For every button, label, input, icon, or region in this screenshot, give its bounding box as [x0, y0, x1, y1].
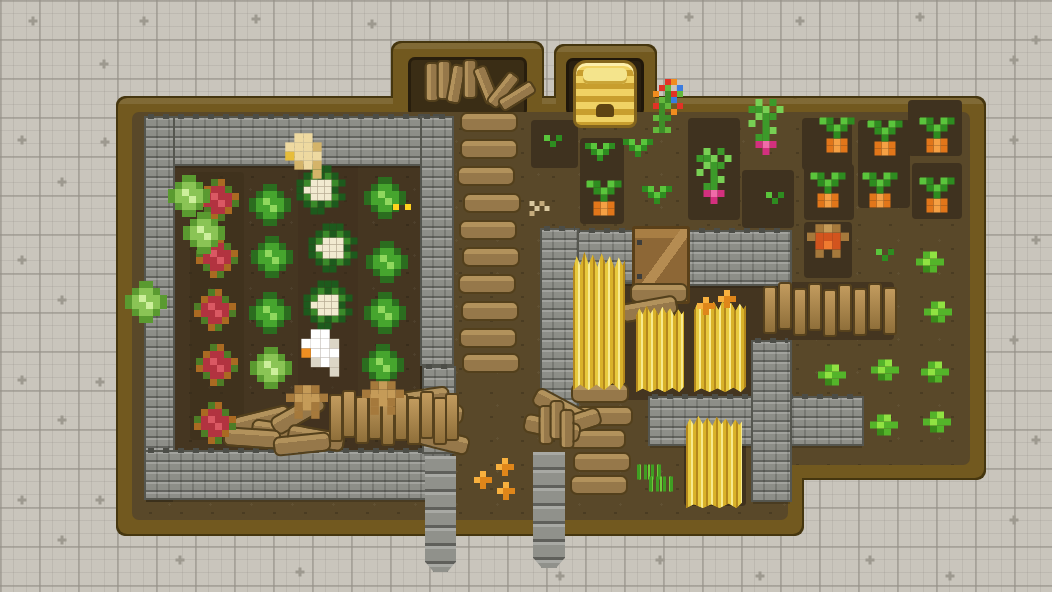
tan-goose[interactable]: [285, 133, 331, 179]
carrot[interactable]: [587, 181, 622, 216]
dwarf[interactable]: [286, 385, 328, 419]
dwarf[interactable]: [362, 381, 404, 415]
sprout[interactable]: [876, 249, 894, 261]
bush[interactable]: [921, 362, 949, 383]
light-cabbage[interactable]: [125, 281, 167, 323]
green-cabbage[interactable]: [366, 241, 408, 283]
red-cabbage[interactable]: [194, 402, 236, 444]
seedling[interactable]: [585, 143, 615, 161]
bush[interactable]: [871, 360, 899, 381]
carrot[interactable]: [920, 178, 955, 213]
carrot[interactable]: [863, 173, 898, 208]
seedling[interactable]: [623, 139, 653, 157]
green-cabbage[interactable]: [249, 292, 291, 334]
bush[interactable]: [916, 252, 944, 273]
sparkle: [393, 204, 417, 216]
green-cabbage[interactable]: [362, 344, 404, 386]
flower-bush[interactable]: [647, 79, 689, 133]
carrot[interactable]: [868, 121, 903, 156]
bush[interactable]: [818, 365, 846, 386]
light-cabbage[interactable]: [168, 175, 210, 217]
chick[interactable]: [474, 471, 492, 489]
seeds: [530, 201, 555, 221]
light-cabbage[interactable]: [183, 212, 225, 254]
chick[interactable]: [697, 297, 715, 315]
game-viewport: [0, 0, 1052, 592]
white-goose[interactable]: [301, 329, 348, 376]
bush[interactable]: [870, 415, 898, 436]
carrot[interactable]: [811, 173, 846, 208]
green-cabbage[interactable]: [249, 184, 291, 226]
bush[interactable]: [924, 302, 952, 323]
red-cabbage[interactable]: [196, 344, 238, 386]
cauliflower[interactable]: [304, 281, 353, 330]
green-cabbage[interactable]: [364, 292, 406, 334]
sprout[interactable]: [766, 192, 784, 204]
radish[interactable]: [749, 99, 784, 155]
layer-entities: [0, 0, 1052, 592]
seedling[interactable]: [642, 186, 672, 204]
sprout[interactable]: [544, 135, 562, 147]
carrot[interactable]: [920, 118, 955, 153]
radish[interactable]: [697, 148, 732, 204]
chick[interactable]: [497, 482, 515, 500]
carrot[interactable]: [820, 118, 855, 153]
green-cabbage[interactable]: [251, 236, 293, 278]
chick[interactable]: [718, 290, 736, 308]
dwarf-redbeard[interactable]: [807, 224, 849, 258]
chick[interactable]: [496, 458, 514, 476]
cauliflower[interactable]: [309, 224, 358, 273]
bush[interactable]: [923, 412, 951, 433]
grass[interactable]: [649, 477, 675, 492]
red-cabbage[interactable]: [194, 289, 236, 331]
